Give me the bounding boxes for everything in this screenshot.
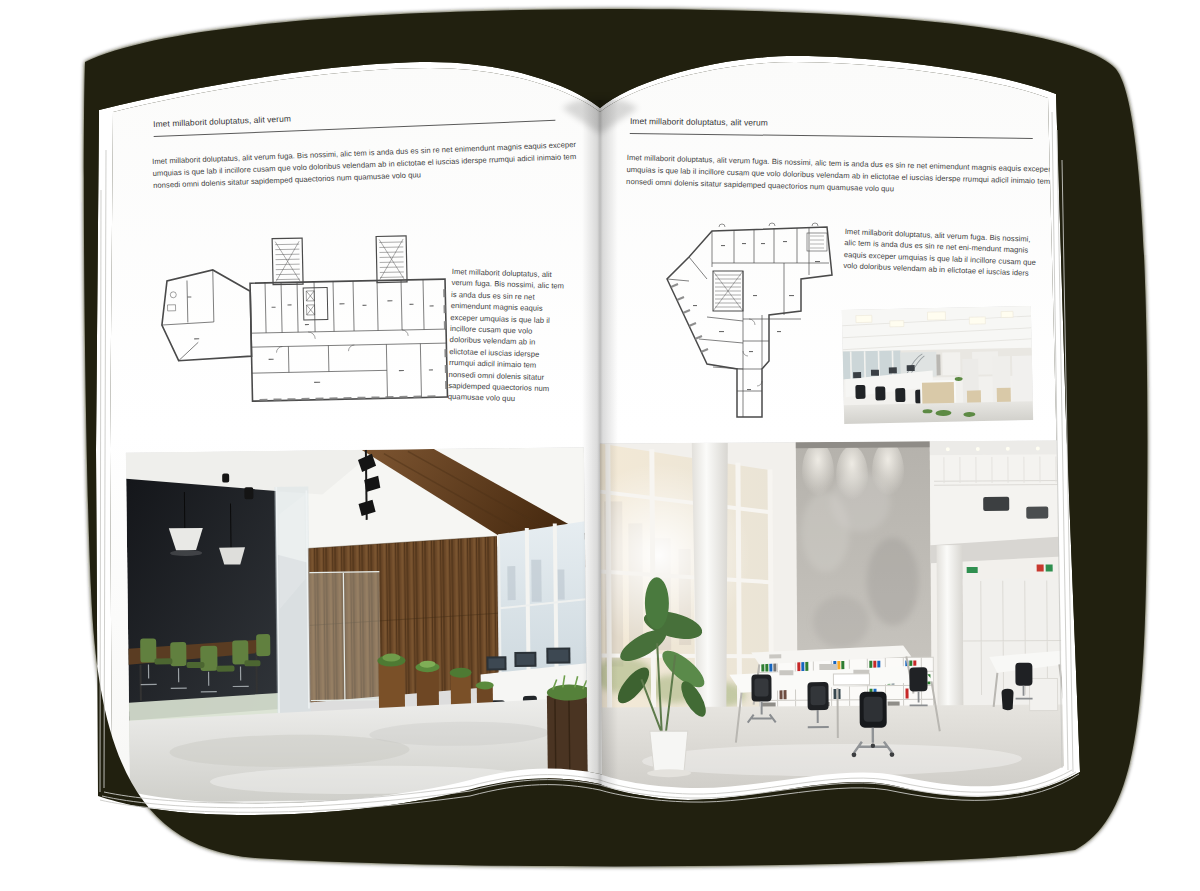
round-column-right (937, 545, 964, 713)
foreground-wood-planter (547, 675, 588, 798)
tiny-room-labels (187, 291, 435, 385)
magazine-spread-mockup: Imet millaborit doluptatus, alit verum I… (0, 0, 1200, 891)
ceiling-lights (842, 306, 1032, 354)
floor-plan-walls (667, 223, 832, 417)
right-floor-plan (649, 221, 841, 426)
mezzanine-balcony (930, 440, 1063, 563)
glass-partition (274, 487, 311, 715)
inner-glass-room (309, 572, 381, 701)
bright-office-small-photo (842, 306, 1033, 424)
left-floor-plan (156, 229, 458, 427)
concrete-feature-wall (796, 441, 932, 660)
floor-plan-walls (160, 235, 447, 403)
window-wall (499, 521, 587, 688)
dark-wood-office-photo (126, 447, 588, 803)
left-plan-caption: Imet millaborit doluptatus, alit verum f… (448, 266, 566, 406)
white-atrium-office-photo (600, 440, 1064, 793)
stair-hatching (275, 239, 404, 282)
right-plan-caption: Imet millaborit doluptatus, alit verum f… (843, 226, 1043, 280)
